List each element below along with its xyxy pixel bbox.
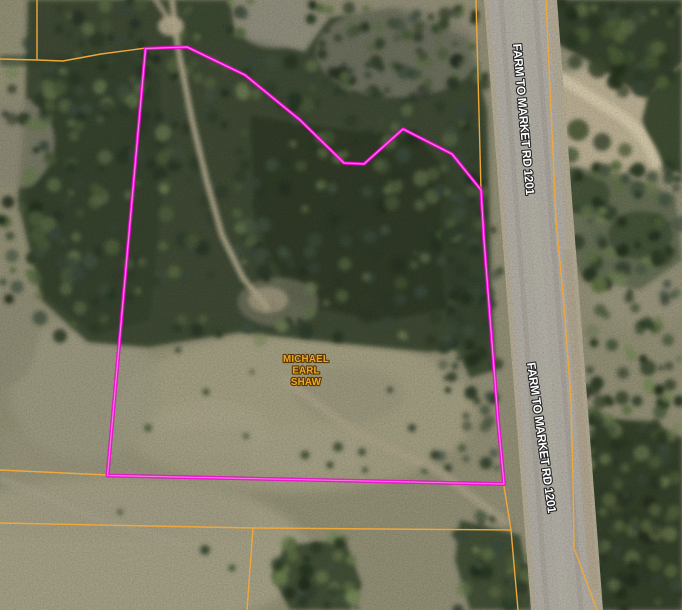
svg-text:MICHAEL: MICHAEL: [283, 354, 329, 365]
svg-text:EARL: EARL: [292, 366, 319, 377]
svg-text:SHAW: SHAW: [291, 377, 322, 388]
